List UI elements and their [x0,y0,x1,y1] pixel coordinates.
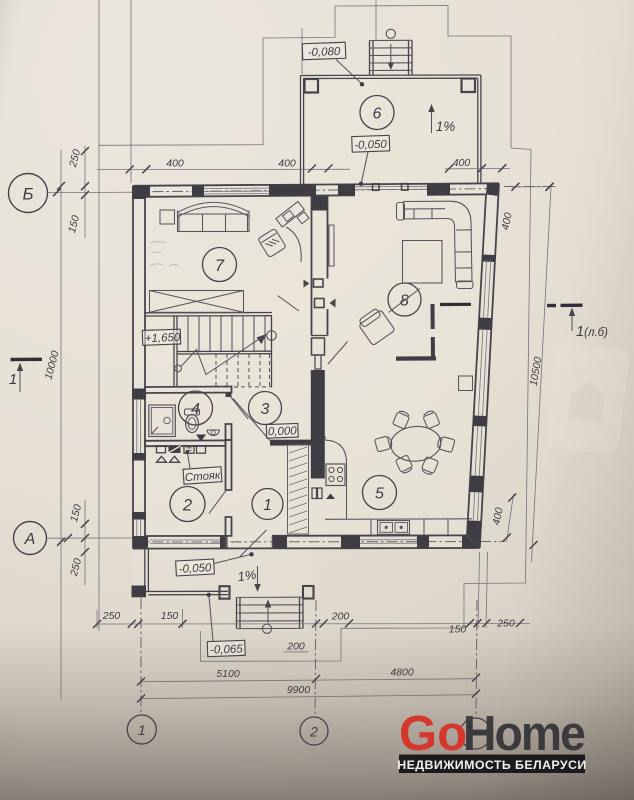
svg-text:Б: Б [22,185,33,204]
svg-text:400: 400 [166,158,184,170]
svg-text:150: 150 [449,624,467,636]
svg-text:200: 200 [331,611,350,623]
svg-text:1: 1 [9,371,17,388]
svg-text:1: 1 [138,722,146,738]
svg-text:4: 4 [191,401,200,418]
svg-text:400: 400 [278,158,296,170]
svg-text:1%: 1% [237,567,258,584]
svg-text:150: 150 [68,503,84,523]
svg-text:-0,050: -0,050 [354,139,388,152]
svg-text:8: 8 [400,293,409,310]
svg-text:0,000: 0,000 [268,425,298,438]
svg-text:+1,650: +1,650 [145,332,181,345]
svg-text:150: 150 [161,610,179,622]
svg-text:2: 2 [182,497,192,515]
svg-text:200: 200 [286,641,305,653]
svg-text:250: 250 [67,148,83,169]
svg-text:5100: 5100 [216,668,240,680]
svg-text:А: А [24,531,36,548]
svg-text:150: 150 [66,214,82,234]
svg-text:10500: 10500 [528,356,545,387]
svg-text:400: 400 [490,506,505,526]
svg-text:1%: 1% [436,119,456,134]
svg-text:400: 400 [499,211,514,231]
svg-text:400: 400 [453,157,471,169]
svg-text:-0,080: -0,080 [308,46,342,59]
svg-text:250: 250 [496,618,515,630]
svg-text:10000: 10000 [43,349,62,380]
svg-text:250: 250 [68,557,84,578]
svg-text:9900: 9900 [287,684,311,696]
svg-text:4800: 4800 [390,666,414,678]
svg-text:Home: Home [463,707,585,761]
svg-text:2: 2 [309,724,318,740]
svg-text:Стояк: Стояк [184,470,221,484]
svg-text:Go: Go [399,707,466,761]
svg-text:-0,050: -0,050 [178,562,212,576]
svg-text:5: 5 [375,486,384,503]
svg-text:1: 1 [263,497,272,514]
svg-text:7: 7 [215,257,225,275]
svg-text:250: 250 [102,610,121,622]
svg-text:1(л.б): 1(л.б) [576,324,608,340]
svg-text:-0,065: -0,065 [210,643,244,656]
svg-text:6: 6 [373,106,382,123]
svg-text:3: 3 [261,401,270,418]
svg-text:НЕДВИЖИМОСТЬ БЕЛАРУСИ: НЕДВИЖИМОСТЬ БЕЛАРУСИ [397,758,586,772]
